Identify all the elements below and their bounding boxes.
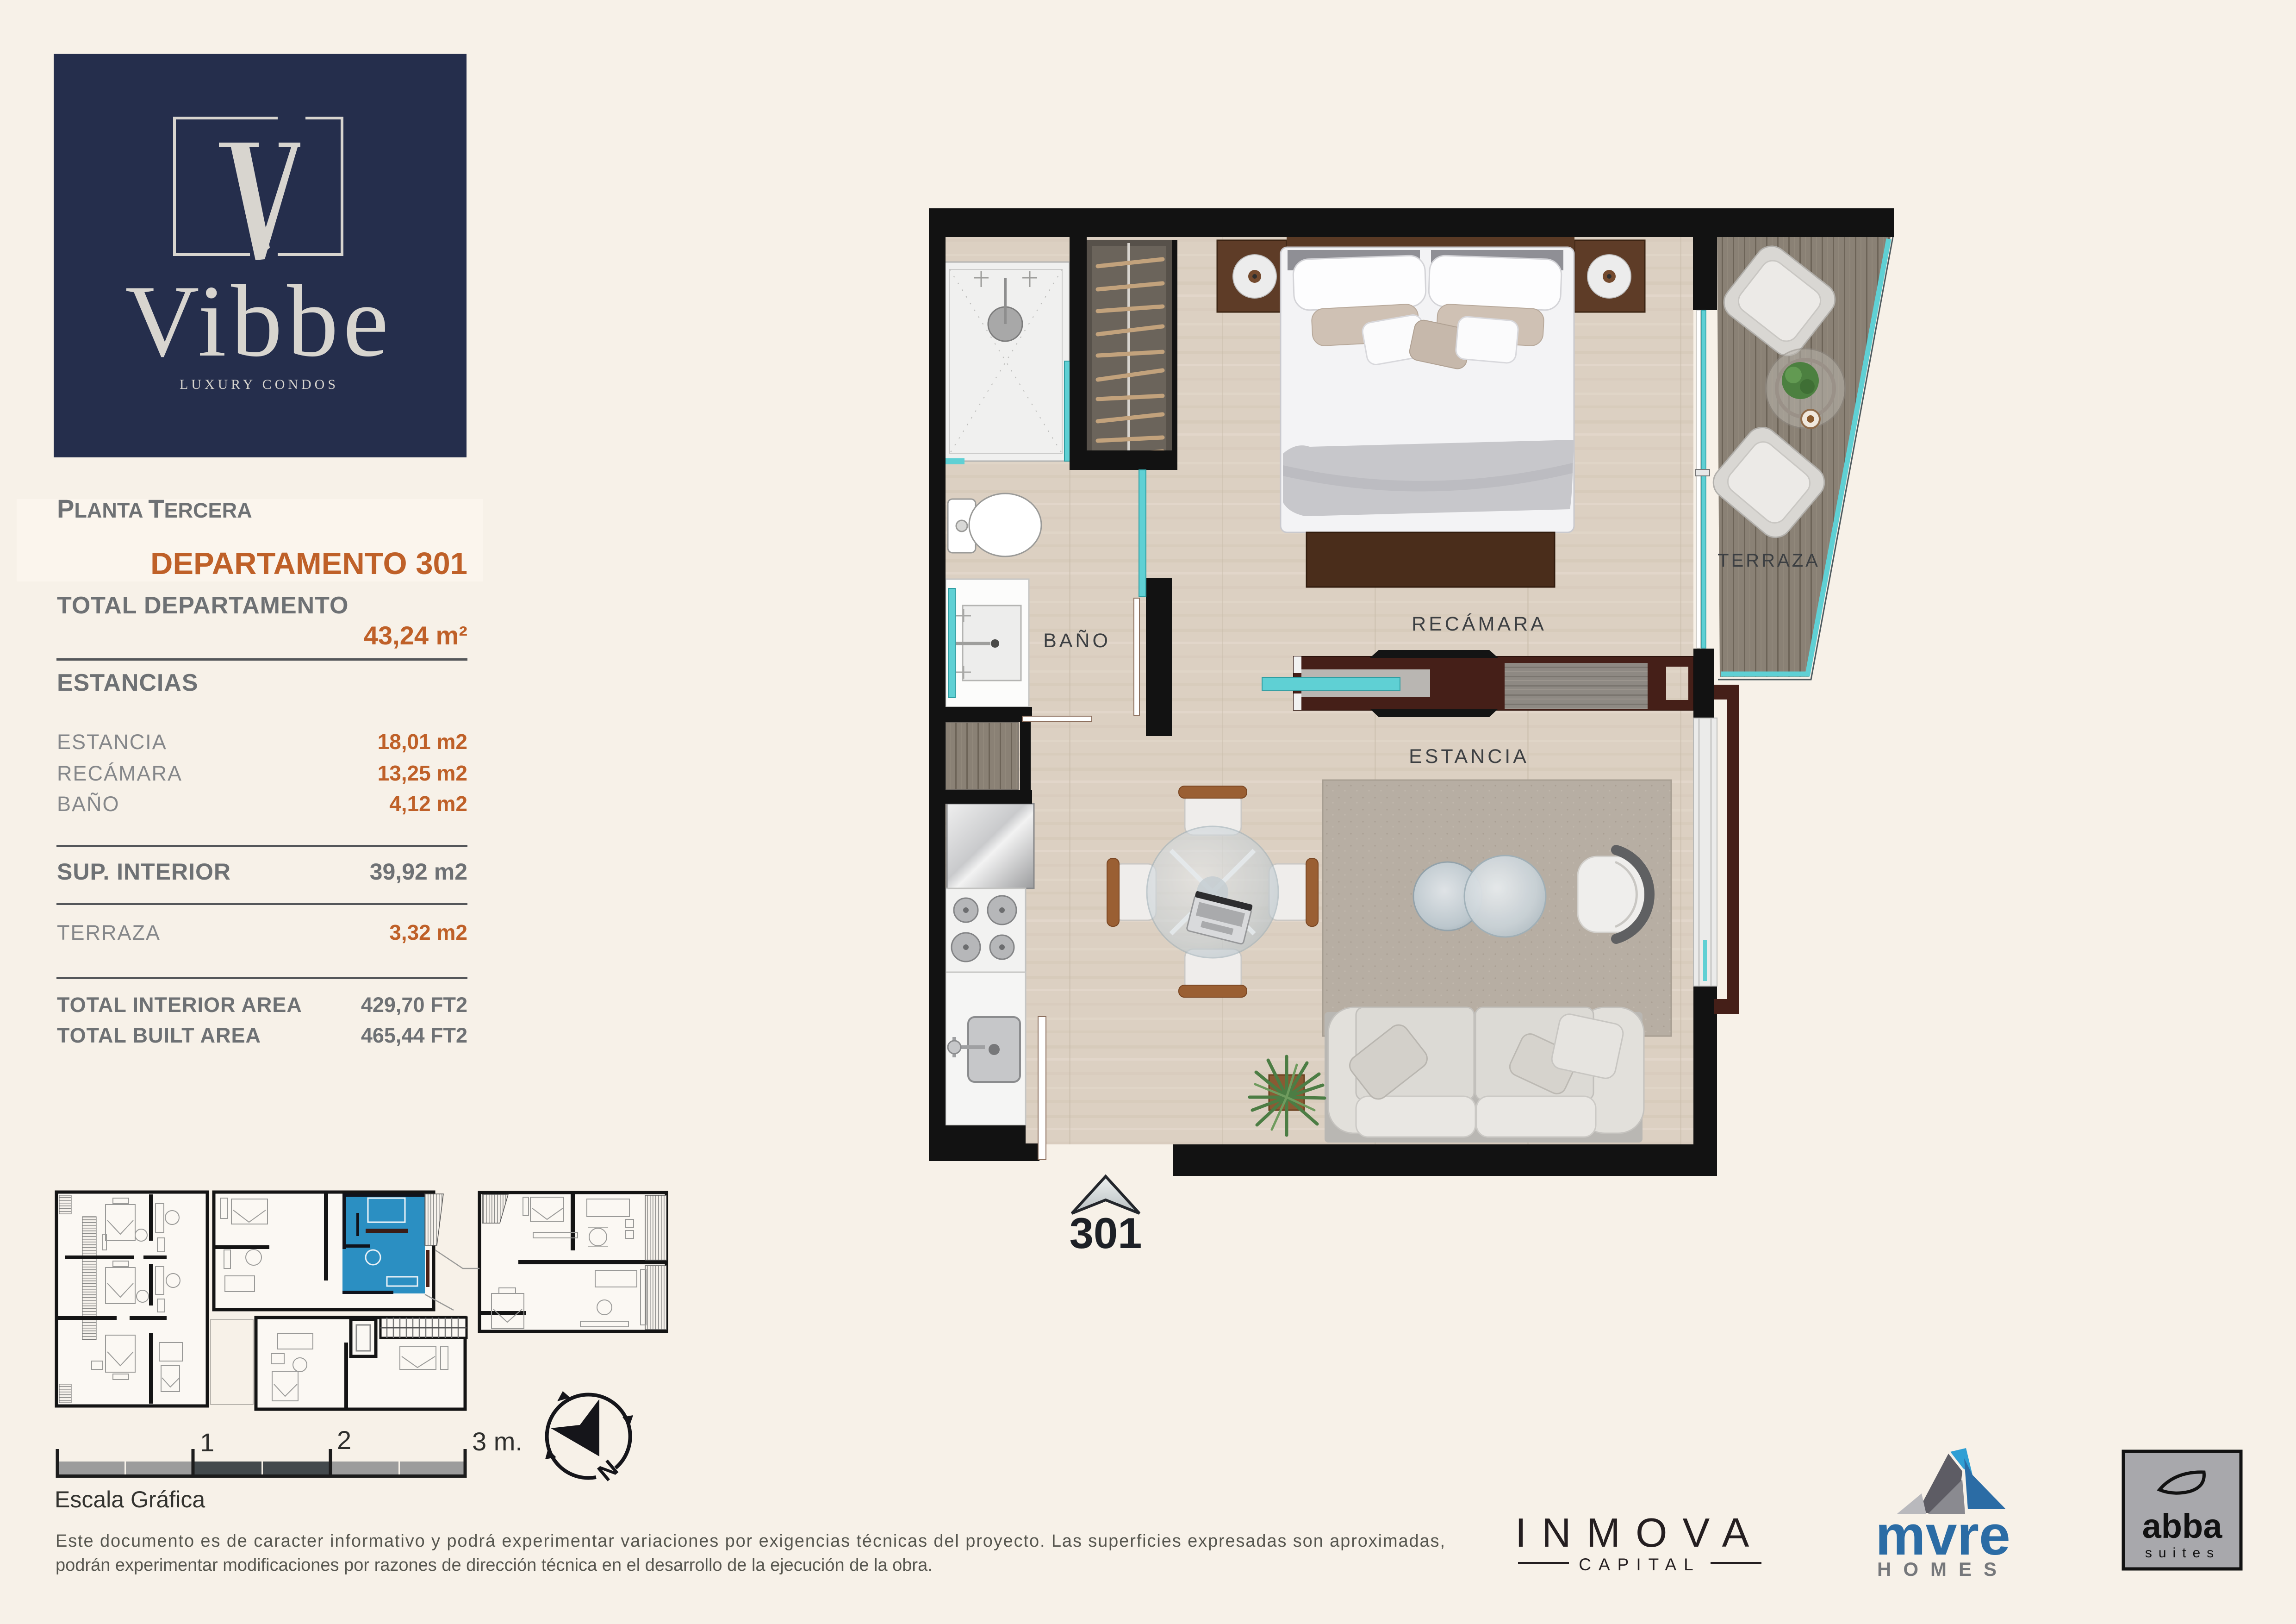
svg-text:Este documento es de caracter: Este documento es de caracter informativ…: [56, 1531, 1445, 1551]
svg-text:CAPITAL: CAPITAL: [1579, 1555, 1700, 1574]
svg-text:DEPARTAMENTO 301: DEPARTAMENTO 301: [150, 546, 467, 581]
svg-text:ESTANCIA: ESTANCIA: [1409, 745, 1529, 768]
svg-text:INMOVA: INMOVA: [1515, 1510, 1765, 1555]
svg-text:BAÑO: BAÑO: [1043, 630, 1111, 652]
svg-text:39,92 m2: 39,92 m2: [370, 859, 467, 885]
svg-text:mvre: mvre: [1875, 1504, 2010, 1567]
svg-text:1: 1: [200, 1428, 214, 1457]
svg-text:465,44 FT2: 465,44 FT2: [361, 1024, 467, 1047]
svg-text:43,24 m²: 43,24 m²: [364, 621, 467, 650]
svg-text:TOTAL DEPARTAMENTO: TOTAL DEPARTAMENTO: [57, 592, 348, 619]
svg-text:LUXURY CONDOS: LUXURY CONDOS: [180, 377, 339, 392]
svg-text:suites: suites: [2145, 1545, 2220, 1561]
svg-text:SUP. INTERIOR: SUP. INTERIOR: [57, 859, 231, 885]
svg-text:BAÑO: BAÑO: [57, 792, 120, 816]
svg-text:TERRAZA: TERRAZA: [1717, 550, 1820, 571]
svg-text:2: 2: [337, 1425, 351, 1455]
svg-text:3 m.: 3 m.: [472, 1427, 523, 1456]
svg-text:RECÁMARA: RECÁMARA: [57, 762, 182, 785]
svg-text:18,01 m2: 18,01 m2: [378, 730, 467, 754]
svg-text:TOTAL BUILT AREA: TOTAL BUILT AREA: [57, 1024, 261, 1047]
svg-text:4,12 m2: 4,12 m2: [389, 792, 467, 816]
svg-text:podrán experimentar modificaci: podrán experimentar modificaciones por r…: [56, 1555, 933, 1575]
svg-text:abba: abba: [2142, 1507, 2223, 1545]
svg-text:RECÁMARA: RECÁMARA: [1412, 613, 1547, 635]
svg-text:PLANTA TERCERA: PLANTA TERCERA: [57, 494, 252, 523]
svg-text:ESTANCIA: ESTANCIA: [57, 730, 167, 754]
svg-text:HOMES: HOMES: [1877, 1558, 2009, 1580]
svg-text:ESTANCIAS: ESTANCIAS: [57, 669, 199, 696]
svg-text:Escala Gráfica: Escala Gráfica: [55, 1487, 205, 1512]
svg-text:TOTAL INTERIOR AREA: TOTAL INTERIOR AREA: [57, 993, 302, 1017]
svg-text:429,70 FT2: 429,70 FT2: [361, 993, 467, 1017]
svg-text:3,32 m2: 3,32 m2: [389, 920, 467, 944]
svg-text:301: 301: [1070, 1209, 1142, 1257]
svg-text:13,25 m2: 13,25 m2: [378, 761, 467, 785]
svg-text:TERRAZA: TERRAZA: [57, 921, 161, 944]
svg-text:Vibbe: Vibbe: [125, 264, 393, 378]
